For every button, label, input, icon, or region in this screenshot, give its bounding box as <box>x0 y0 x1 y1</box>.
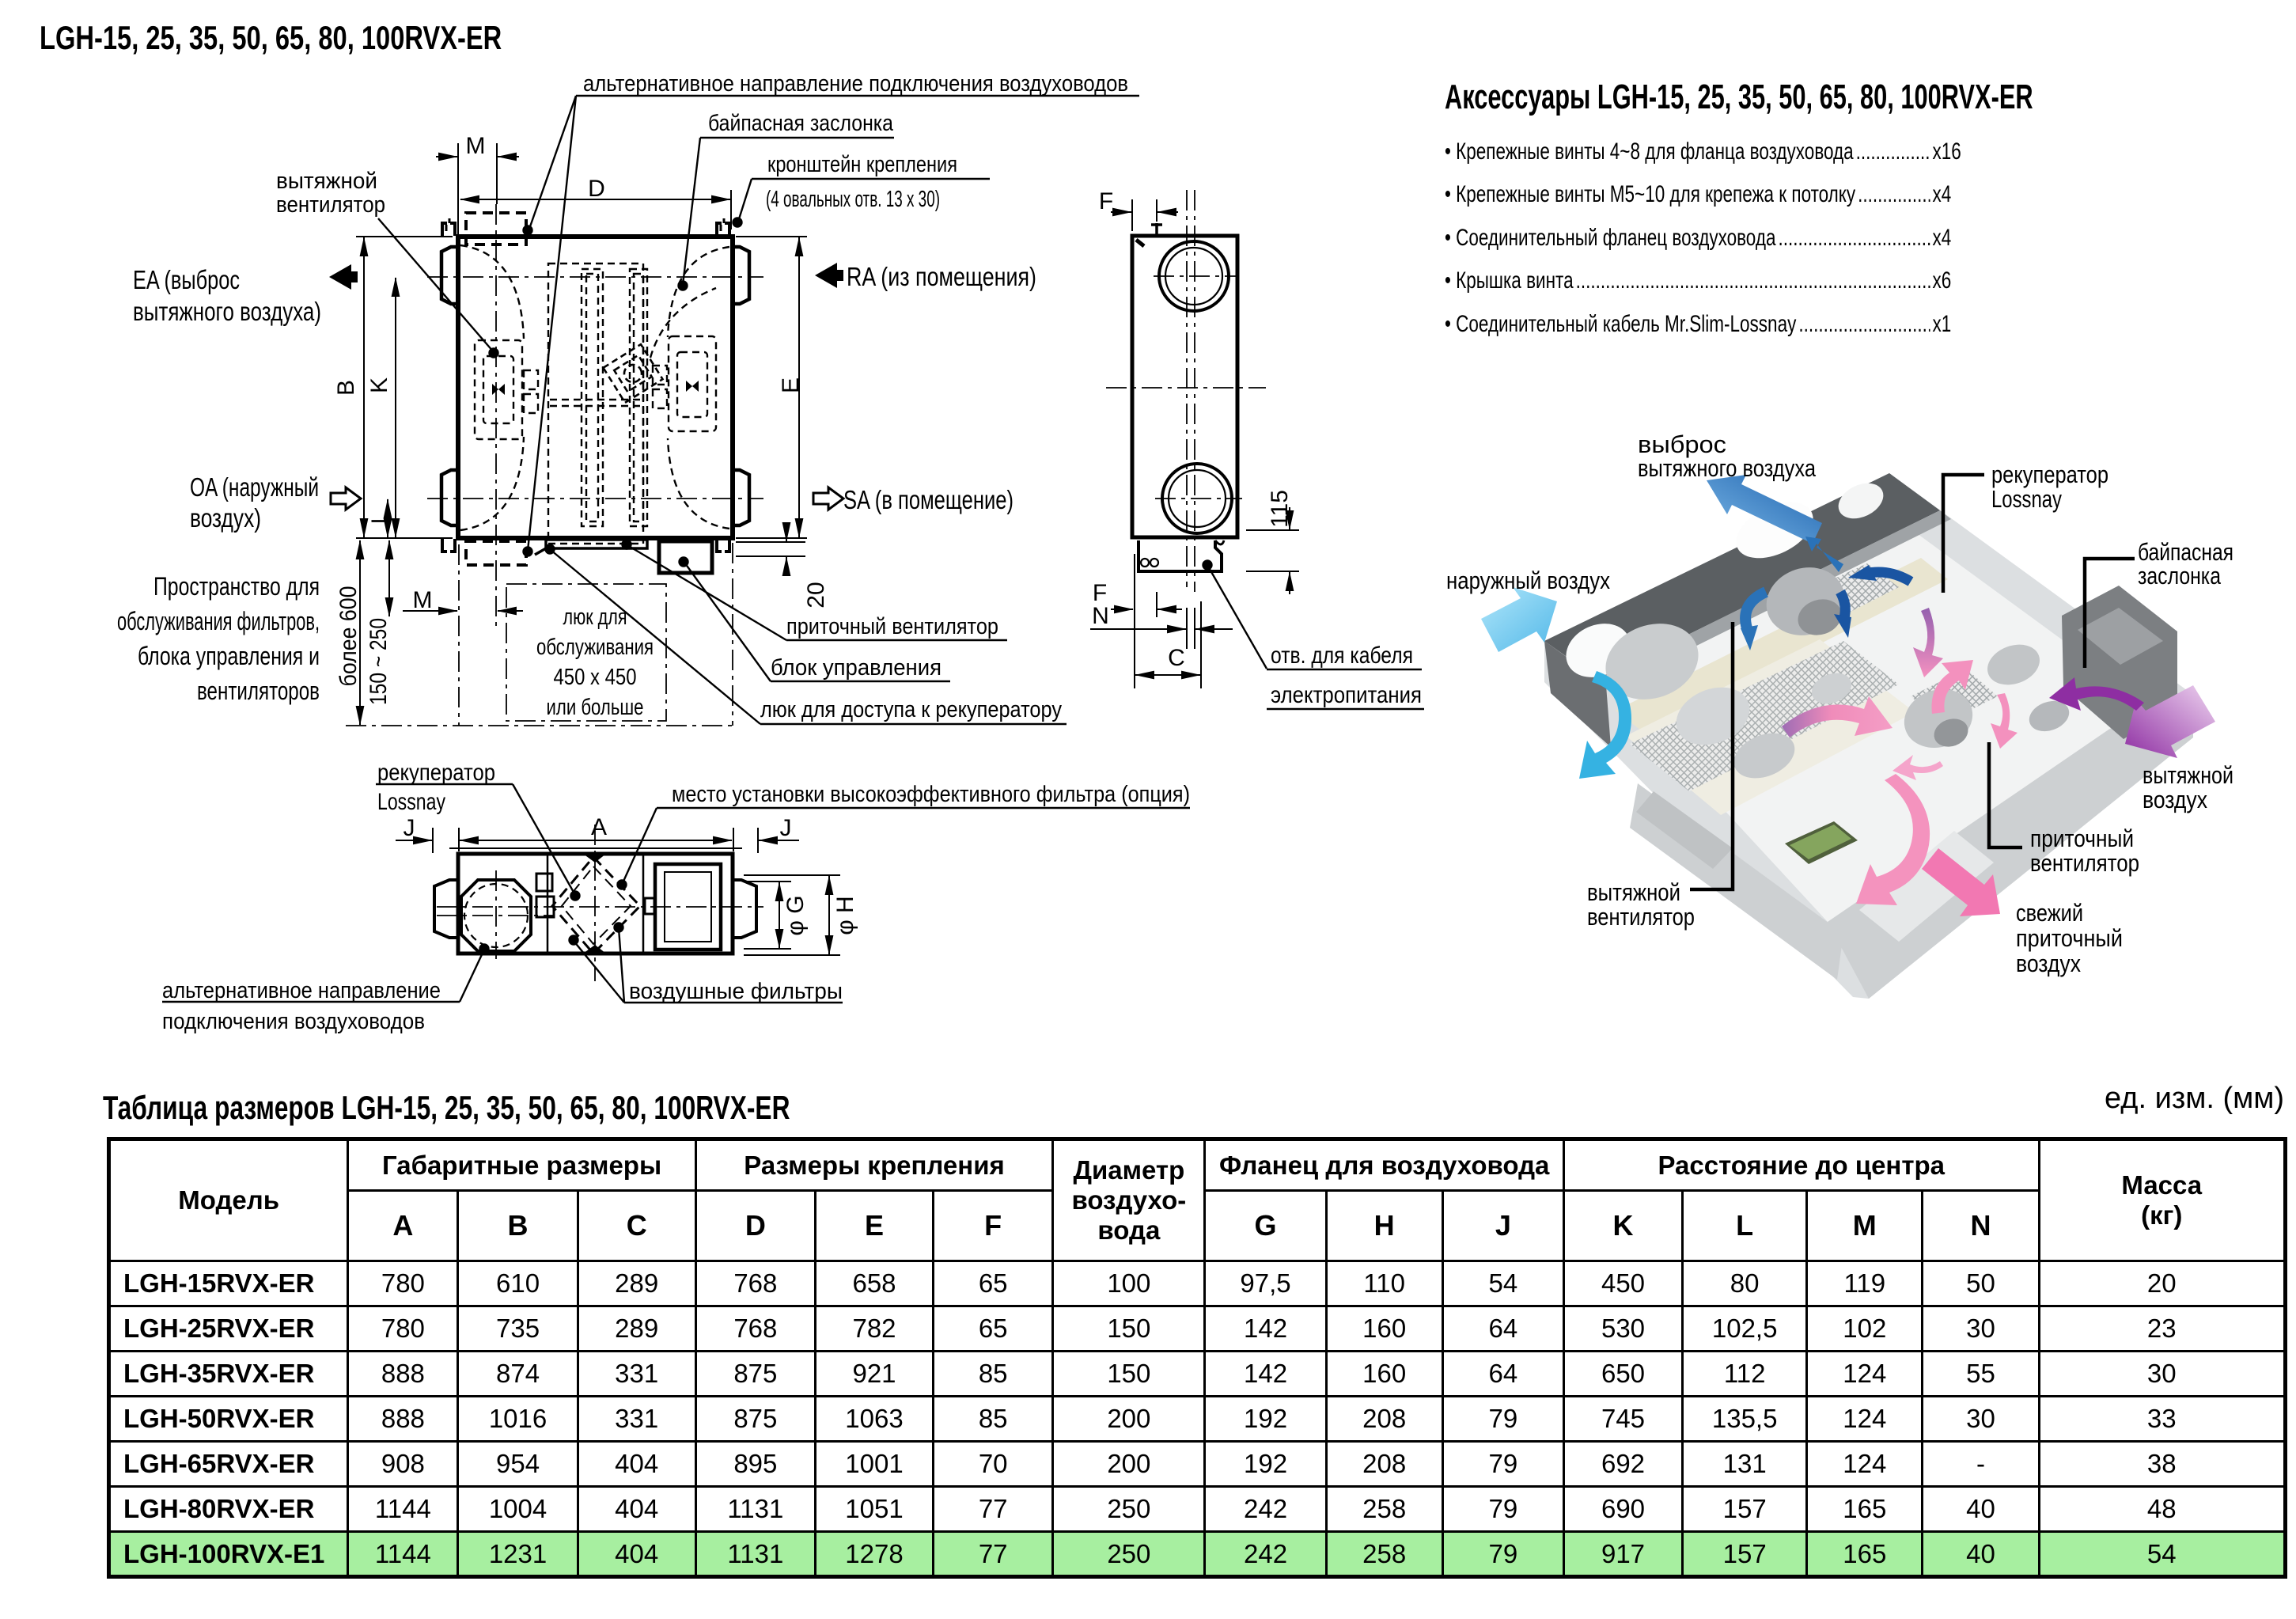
svg-text:люк для доступа к рекуператору: люк для доступа к рекуператору <box>760 697 1062 722</box>
svg-text:место установки высокоэффектив: место установки высокоэффективного фильт… <box>672 782 1190 807</box>
svg-text:K: K <box>366 377 392 393</box>
svg-text:воздух: воздух <box>2143 786 2207 813</box>
svg-text:байпасная заслонка: байпасная заслонка <box>708 111 894 136</box>
svg-text:вентиляторов: вентиляторов <box>197 677 320 705</box>
svg-text:OA (наружный: OA (наружный <box>190 472 319 502</box>
svg-text:вентилятор: вентилятор <box>276 192 385 218</box>
svg-text:J: J <box>780 815 792 841</box>
svg-text:вентилятор: вентилятор <box>1587 903 1695 931</box>
svg-text:более 600: более 600 <box>335 586 362 687</box>
svg-text:альтернативное направление: альтернативное направление <box>162 978 441 1003</box>
svg-text:Lossnay: Lossnay <box>1991 485 2062 513</box>
svg-text:наружный воздух: наружный воздух <box>1446 567 1610 594</box>
svg-text:альтернативное направление под: альтернативное направление подключения в… <box>583 71 1128 97</box>
svg-text:N: N <box>1092 603 1109 629</box>
svg-text:приточный: приточный <box>2030 825 2134 852</box>
svg-text:E: E <box>778 377 804 393</box>
svg-text:обслуживания фильтров,: обслуживания фильтров, <box>117 607 320 635</box>
svg-text:вытяжного воздуха: вытяжного воздуха <box>1638 454 1817 482</box>
svg-text:воздушные фильтры: воздушные фильтры <box>629 979 843 1004</box>
svg-text:J: J <box>404 815 415 841</box>
svg-text:115: 115 <box>1267 490 1293 528</box>
svg-text:отв. для кабеля: отв. для кабеля <box>1271 643 1413 669</box>
svg-text:φ H: φ H <box>832 896 858 935</box>
svg-text:воздух): воздух) <box>190 503 261 533</box>
svg-text:SA (в помещение): SA (в помещение) <box>843 485 1013 514</box>
svg-text:EA (выброс: EA (выброс <box>133 265 240 294</box>
svg-text:воздух: воздух <box>2016 950 2081 977</box>
svg-text:20: 20 <box>803 582 829 608</box>
svg-text:B: B <box>333 380 359 396</box>
svg-text:свежий: свежий <box>2016 899 2083 927</box>
svg-text:или больше: или больше <box>547 695 644 720</box>
svg-text:Пространство для: Пространство для <box>153 572 320 601</box>
svg-text:Lossnay: Lossnay <box>377 789 445 815</box>
svg-text:рекуператор: рекуператор <box>377 760 495 786</box>
svg-text:вытяжной: вытяжной <box>276 169 377 194</box>
svg-text:подключения воздуховодов: подключения воздуховодов <box>162 1009 425 1034</box>
svg-text:A: A <box>591 814 607 840</box>
svg-text:φ G: φ G <box>782 895 809 935</box>
svg-text:C: C <box>1168 645 1185 671</box>
svg-text:приточный вентилятор: приточный вентилятор <box>786 614 998 639</box>
svg-text:150 ~ 250: 150 ~ 250 <box>366 618 392 705</box>
svg-text:люк для: люк для <box>563 605 627 630</box>
svg-text:(4 овальных отв. 13 x 30): (4 овальных отв. 13 x 30) <box>766 187 940 212</box>
svg-text:электропитания: электропитания <box>1271 682 1422 708</box>
svg-text:M: M <box>413 587 433 613</box>
svg-text:D: D <box>588 176 605 202</box>
svg-text:вентилятор: вентилятор <box>2030 849 2139 877</box>
svg-text:RA (из помещения): RA (из помещения) <box>847 262 1036 291</box>
svg-text:450 x 450: 450 x 450 <box>554 665 637 690</box>
svg-text:M: M <box>466 133 486 159</box>
svg-text:вытяжного воздуха): вытяжного воздуха) <box>133 297 321 326</box>
svg-text:рекуператор: рекуператор <box>1991 461 2108 488</box>
svg-text:L: L <box>367 511 393 525</box>
svg-text:приточный: приточный <box>2016 924 2123 952</box>
svg-text:обслуживания: обслуживания <box>536 635 654 660</box>
svg-text:вытяжной: вытяжной <box>2143 761 2233 789</box>
svg-text:блока управления и: блока управления и <box>138 642 320 670</box>
svg-text:заслонка: заслонка <box>2138 562 2222 590</box>
svg-text:блок управления: блок управления <box>771 655 942 681</box>
svg-text:кронштейн крепления: кронштейн крепления <box>767 152 957 177</box>
svg-text:F: F <box>1099 188 1113 214</box>
svg-text:вытяжной: вытяжной <box>1587 878 1680 906</box>
